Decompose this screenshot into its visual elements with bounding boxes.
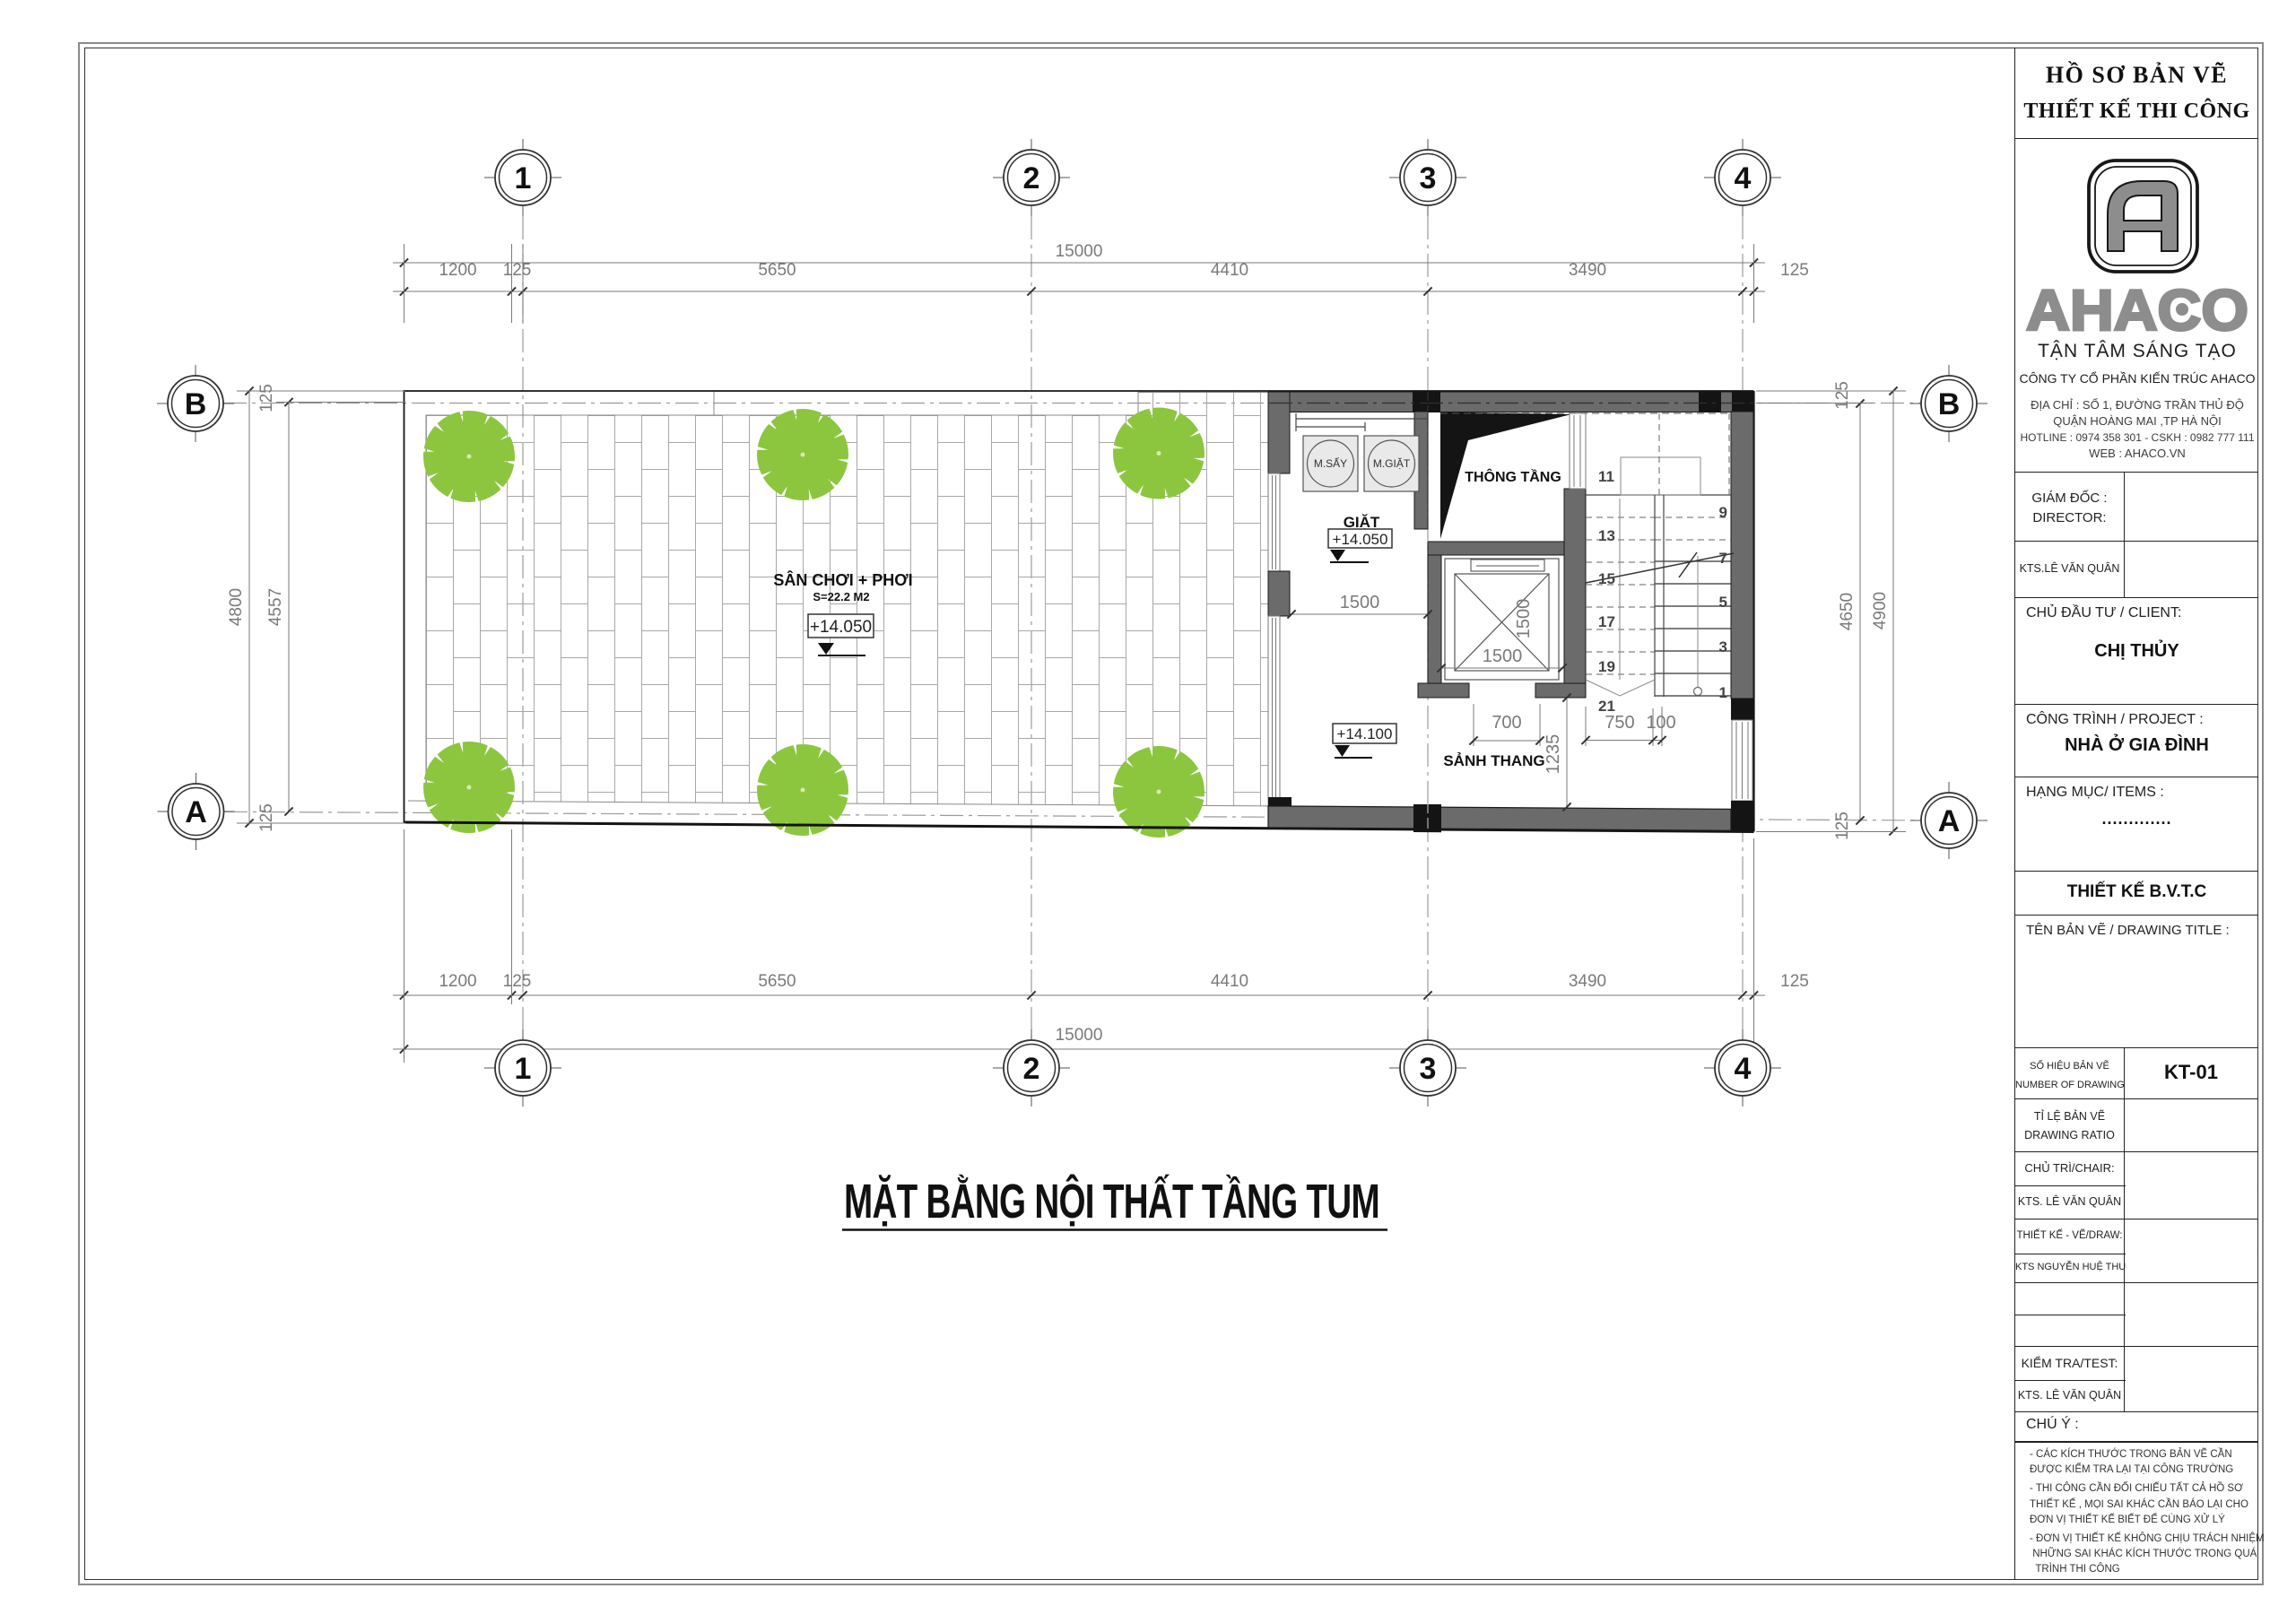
svg-text:1200: 1200 — [439, 261, 476, 280]
svg-text:4: 4 — [1735, 161, 1752, 195]
svg-text:A: A — [185, 795, 207, 829]
svg-text:1: 1 — [515, 161, 532, 195]
svg-text:11: 11 — [1598, 468, 1614, 485]
svg-text:1500: 1500 — [1483, 647, 1523, 666]
svg-text:4: 4 — [1735, 1052, 1752, 1086]
svg-text:3: 3 — [1420, 161, 1437, 195]
svg-text:3490: 3490 — [1569, 261, 1606, 280]
svg-text:1500: 1500 — [1340, 593, 1380, 612]
svg-text:B: B — [185, 387, 207, 421]
svg-text:5650: 5650 — [758, 261, 796, 280]
svg-text:QUẬN HOÀNG MAI ,TP HÀ NỘI: QUẬN HOÀNG MAI ,TP HÀ NỘI — [2053, 414, 2222, 428]
svg-text:125: 125 — [257, 384, 276, 412]
svg-text:5650: 5650 — [758, 972, 796, 991]
svg-text:M.SẤY: M.SẤY — [1314, 456, 1347, 470]
svg-text:4410: 4410 — [1211, 261, 1248, 280]
svg-text:ĐỊA CHỈ : SỐ 1, ĐƯỜNG TRẦN THỦ: ĐỊA CHỈ : SỐ 1, ĐƯỜNG TRẦN THỦ ĐỘ — [2031, 398, 2244, 412]
svg-text:125: 125 — [1833, 811, 1852, 840]
svg-text:1200: 1200 — [439, 972, 476, 991]
svg-text:1: 1 — [1719, 684, 1727, 701]
svg-text:MẶT BẰNG NỘI THẤT TẦNG TUM: MẶT BẰNG NỘI THẤT TẦNG TUM — [844, 1175, 1379, 1228]
svg-text:125: 125 — [1780, 261, 1809, 280]
svg-text:125: 125 — [503, 261, 532, 280]
svg-text:WEB : AHACO.VN: WEB : AHACO.VN — [2089, 447, 2186, 460]
svg-text:+14.050: +14.050 — [1333, 531, 1388, 548]
svg-text:2: 2 — [1023, 161, 1040, 195]
svg-text:TẬN TÂM SÁNG TẠO: TẬN TÂM SÁNG TẠO — [2038, 341, 2237, 361]
svg-text:4557: 4557 — [266, 588, 285, 626]
svg-text:5: 5 — [1719, 594, 1727, 611]
svg-text:4800: 4800 — [227, 588, 246, 626]
svg-text:700: 700 — [1492, 713, 1521, 733]
svg-text:7: 7 — [1719, 550, 1727, 567]
svg-text:THÔNG TẦNG: THÔNG TẦNG — [1465, 468, 1561, 485]
svg-text:19: 19 — [1598, 658, 1615, 675]
svg-text:3: 3 — [1719, 638, 1727, 655]
svg-text:17: 17 — [1598, 613, 1615, 630]
svg-text:13: 13 — [1598, 527, 1615, 544]
svg-text:15: 15 — [1598, 570, 1615, 587]
svg-text:AHACO: AHACO — [2026, 278, 2248, 343]
svg-text:4650: 4650 — [1838, 593, 1857, 630]
svg-text:125: 125 — [503, 972, 532, 991]
svg-text:B: B — [1938, 387, 1961, 421]
svg-text:CÔNG TY CỔ PHẦN KIẾN TRÚC AHAC: CÔNG TY CỔ PHẦN KIẾN TRÚC AHACO — [2020, 370, 2256, 386]
svg-text:125: 125 — [1780, 972, 1809, 991]
svg-text:15000: 15000 — [1056, 242, 1103, 261]
svg-text:+14.100: +14.100 — [1337, 725, 1393, 742]
svg-text:1: 1 — [515, 1052, 532, 1086]
svg-text:100: 100 — [1646, 713, 1675, 733]
svg-text:SÂN CHƠI + PHƠI: SÂN CHƠI + PHƠI — [773, 570, 912, 589]
svg-text:1500: 1500 — [1514, 599, 1534, 639]
svg-text:1235: 1235 — [1544, 734, 1563, 775]
svg-text:9: 9 — [1719, 504, 1727, 521]
svg-text:3: 3 — [1420, 1052, 1437, 1086]
svg-text:3490: 3490 — [1569, 972, 1606, 991]
svg-text:S=22.2 M2: S=22.2 M2 — [813, 590, 869, 603]
svg-text:15000: 15000 — [1056, 1026, 1103, 1045]
svg-text:HOTLINE : 0974 358 301 -: HOTLINE : 0974 358 301 - CSKH : 0982 777… — [2020, 431, 2254, 444]
svg-text:M.GIẶT: M.GIẶT — [1373, 456, 1411, 470]
svg-text:SẢNH THANG: SẢNH THANG — [1443, 752, 1544, 769]
svg-text:750: 750 — [1605, 713, 1634, 733]
svg-text:4900: 4900 — [1871, 592, 1890, 629]
svg-text:+14.050: +14.050 — [810, 618, 872, 637]
svg-text:GIẶT: GIẶT — [1344, 514, 1380, 531]
svg-text:125: 125 — [1833, 381, 1852, 410]
svg-text:2: 2 — [1023, 1052, 1040, 1086]
svg-text:A: A — [1938, 804, 1961, 838]
svg-text:4410: 4410 — [1211, 972, 1248, 991]
svg-text:125: 125 — [257, 803, 276, 832]
